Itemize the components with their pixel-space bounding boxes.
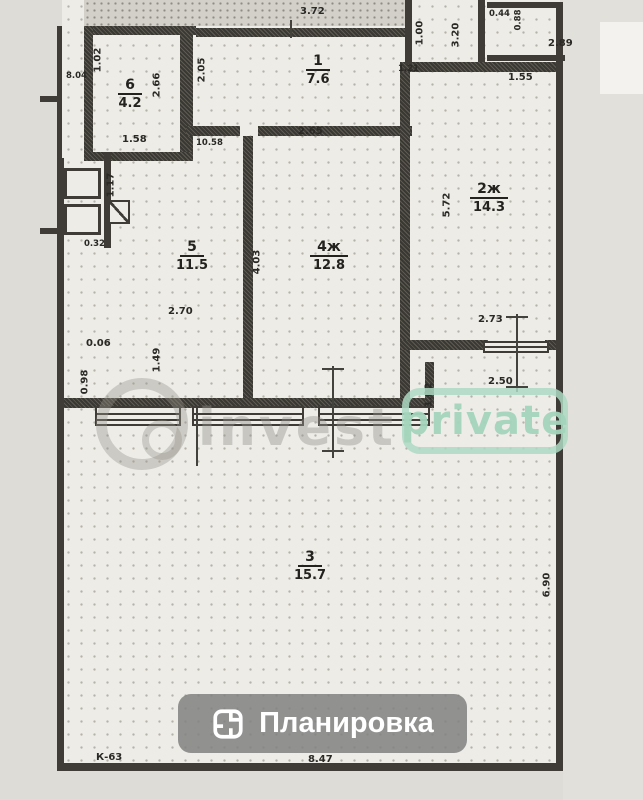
room-number: 2ж [470, 181, 508, 199]
watermark-logo-swirl-icon [142, 420, 182, 460]
shaft-box [64, 204, 101, 235]
dim-label: 6.90 [541, 573, 553, 598]
wall [478, 0, 485, 62]
wall [400, 62, 562, 72]
hatched-strip-top [84, 0, 406, 26]
dimension-tick [506, 316, 528, 318]
dim-label: 3.20 [450, 23, 462, 48]
wall [487, 55, 565, 61]
wall [400, 340, 488, 350]
dim-label: 1.58 [122, 134, 147, 146]
shaft-box [64, 168, 101, 199]
room-number: 5 [180, 239, 204, 257]
room-label-1: 1 7.6 [292, 50, 344, 87]
room-label-2zh: 2ж 14.3 [460, 178, 518, 215]
dim-label: 2.70 [168, 306, 193, 318]
dim-label: 0.32 [84, 238, 105, 250]
dimension-line [290, 20, 292, 38]
dim-label: К-63 [96, 752, 122, 764]
room-label-4zh: 4ж 12.8 [300, 236, 358, 273]
dimension-tick [322, 368, 344, 370]
room-area: 12.8 [300, 257, 358, 273]
room-area: 4.2 [106, 95, 154, 111]
wall [57, 158, 64, 770]
dim-label: 2.73 [478, 314, 503, 326]
floorplan-icon [211, 707, 245, 741]
floor-plan-screenshot: 6 4.2 1 7.6 2ж 14.3 5 11.5 4ж 12.8 3 15.… [0, 0, 643, 800]
room-number: 4ж [310, 239, 348, 257]
room-number: 3 [298, 549, 322, 567]
wall [84, 26, 93, 161]
dim-label: 1.55 [508, 72, 533, 84]
dim-label: 8.47 [308, 754, 333, 766]
dim-label: 0.44 [489, 8, 510, 20]
dim-label: 5.72 [441, 193, 453, 218]
wall [196, 28, 412, 37]
room-label-3: 3 15.7 [282, 546, 338, 583]
wall [400, 62, 410, 404]
floorplan-button-label: Планировка [259, 707, 434, 740]
dim-label: 0.98 [79, 370, 91, 395]
wall [556, 2, 563, 770]
room-area: 11.5 [166, 257, 218, 273]
wall [186, 126, 240, 136]
wall [57, 26, 62, 158]
wall [40, 228, 57, 234]
dim-label: 2.65 [298, 126, 323, 138]
dim-label: 1.02 [92, 48, 104, 73]
outside-white-patch [600, 22, 643, 94]
dim-label: 2.50 [488, 376, 513, 388]
dim-label: 1.17 [105, 173, 117, 198]
dim-label: 3.72 [300, 6, 325, 18]
wall [40, 96, 57, 102]
wall [405, 0, 412, 64]
dim-label: 2.89 [548, 38, 573, 50]
wall [180, 28, 193, 161]
dim-label: 8.04 [66, 70, 87, 82]
wall [258, 126, 412, 136]
room-label-6: 6 4.2 [106, 74, 154, 111]
room-area: 14.3 [460, 199, 518, 215]
watermark-private-text: private [401, 398, 569, 444]
dim-label: 0.88 [512, 10, 524, 31]
watermark-private-badge: private [402, 388, 568, 454]
dim-label: 2.05 [196, 58, 208, 83]
room-area: 15.7 [282, 567, 338, 583]
wall [84, 152, 193, 161]
dim-label: 1.21 [398, 63, 419, 75]
room-area: 7.6 [292, 71, 344, 87]
room-label-5: 5 11.5 [166, 236, 218, 273]
dim-label: 10.58 [196, 137, 223, 149]
dim-label: 1.49 [151, 348, 163, 373]
dimension-line [516, 314, 518, 392]
room-number: 1 [306, 53, 330, 71]
dim-label: 0.06 [86, 338, 111, 350]
dim-label: 1.00 [414, 21, 426, 46]
floorplan-button[interactable]: Планировка [178, 694, 467, 753]
duct-box [108, 200, 130, 224]
dim-label: 2.66 [151, 73, 163, 98]
watermark-invest-text: invest [198, 398, 396, 458]
room-number: 6 [118, 77, 142, 95]
outside-area-right [563, 0, 643, 800]
dim-label: 4.03 [251, 250, 263, 275]
